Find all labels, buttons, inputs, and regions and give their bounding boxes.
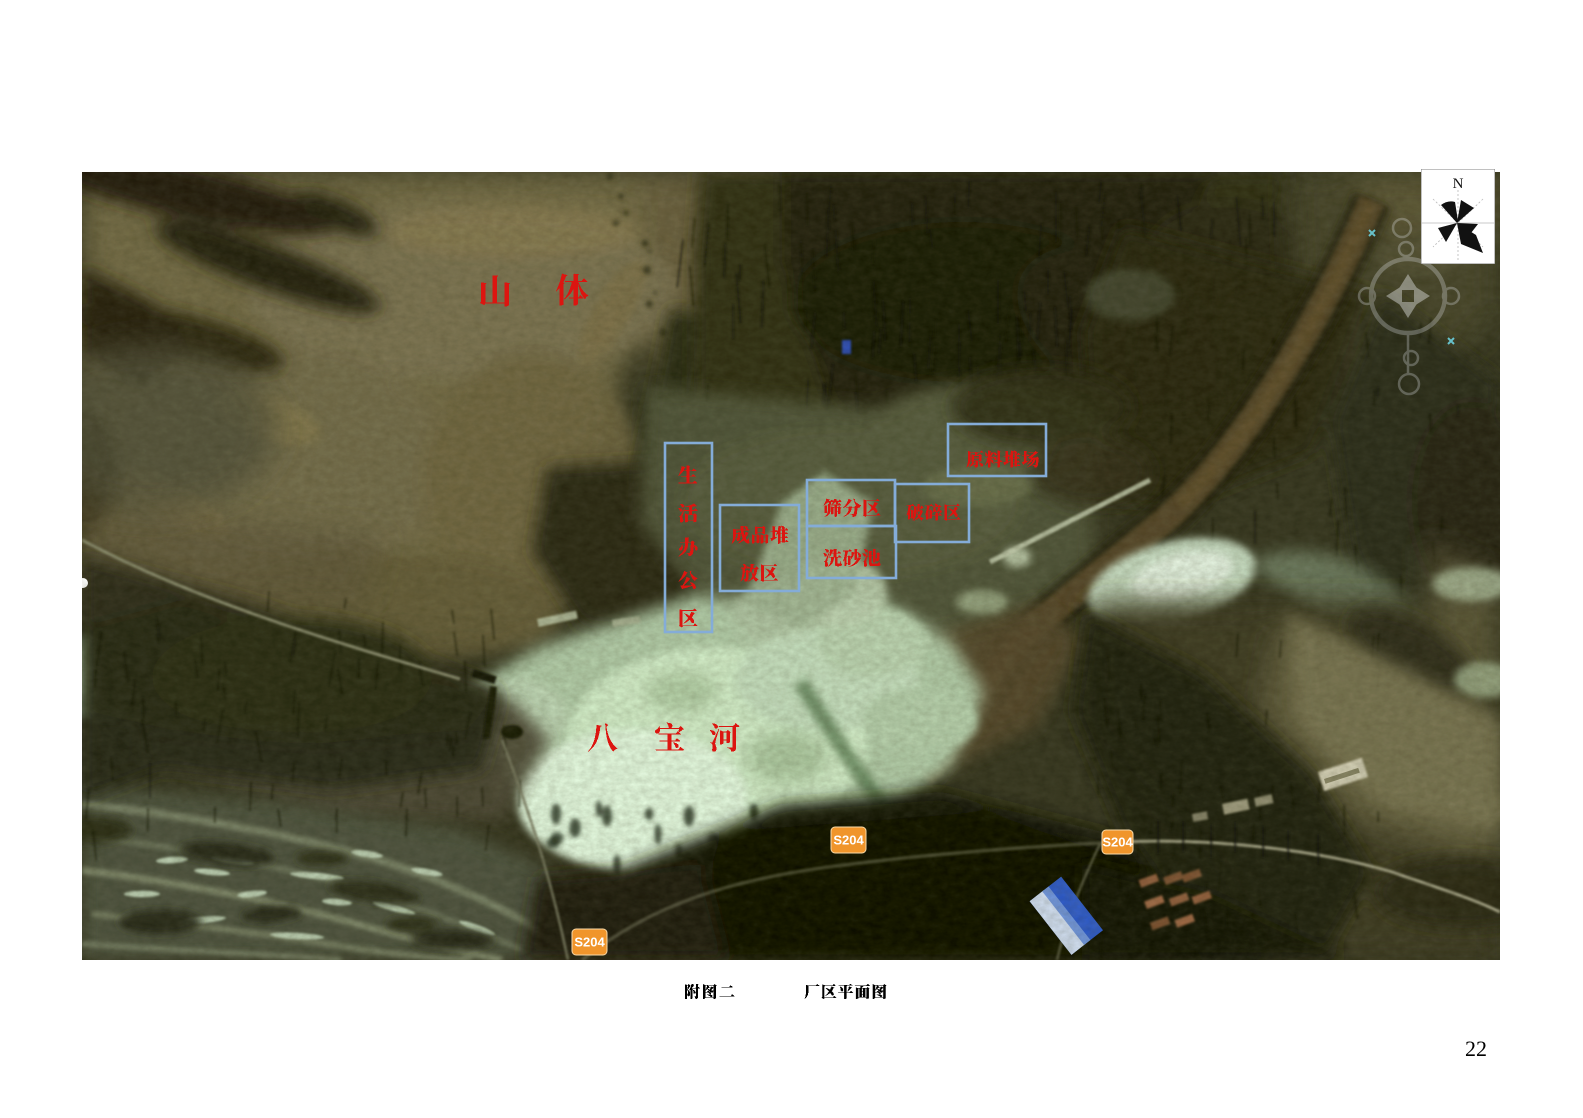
svg-text:S204: S204 (574, 935, 605, 950)
svg-text:N: N (1453, 176, 1464, 192)
svg-text:S204: S204 (833, 833, 864, 848)
svg-text:S204: S204 (1102, 835, 1133, 850)
